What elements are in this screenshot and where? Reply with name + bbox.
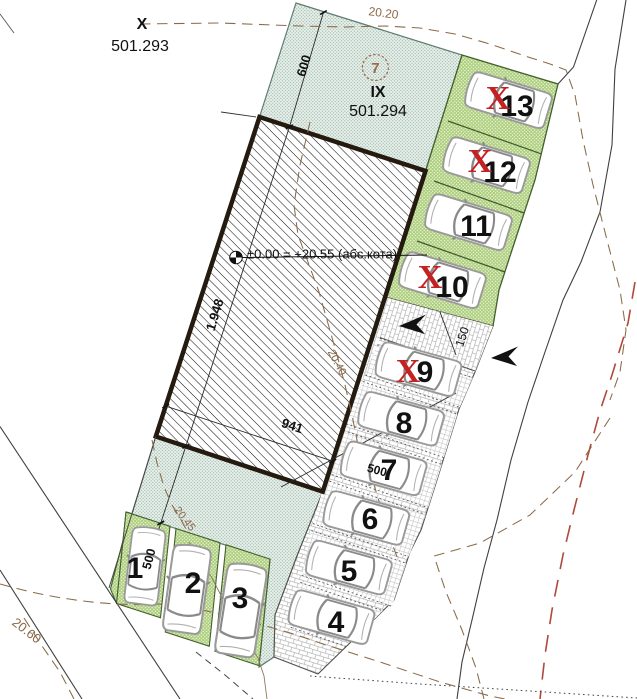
svg-text:7: 7 [381, 454, 398, 487]
svg-text:X: X [418, 259, 443, 296]
svg-text:IX: IX [370, 84, 385, 101]
svg-text:X: X [468, 143, 493, 180]
svg-text:X: X [396, 353, 421, 390]
svg-text:X: X [486, 80, 511, 117]
svg-text:1: 1 [127, 552, 144, 585]
svg-text:6: 6 [362, 503, 379, 536]
svg-text:501.294: 501.294 [349, 103, 407, 120]
svg-text:±0.00 = +20.55 (абс.кота): ±0.00 = +20.55 (абс.кота) [247, 247, 397, 262]
svg-text:2: 2 [185, 567, 202, 600]
svg-text:4: 4 [328, 606, 345, 639]
svg-text:5: 5 [341, 555, 358, 588]
svg-text:7: 7 [371, 60, 379, 77]
svg-text:11: 11 [460, 210, 492, 243]
svg-text:3: 3 [232, 582, 249, 615]
svg-text:X: X [137, 16, 148, 33]
svg-text:501.293: 501.293 [111, 38, 169, 55]
svg-text:8: 8 [396, 407, 413, 440]
